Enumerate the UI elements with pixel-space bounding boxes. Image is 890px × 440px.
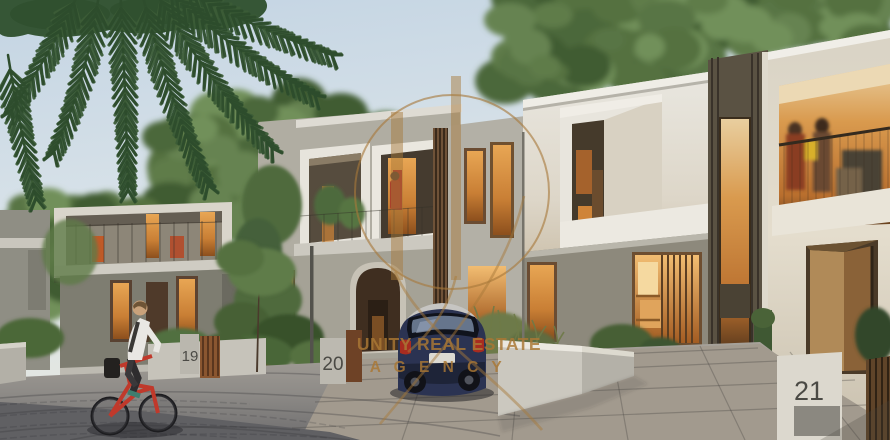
- svg-text:A G E N C Y: A G E N C Y: [370, 359, 507, 376]
- svg-text:UNITY REAL ESTATE: UNITY REAL ESTATE: [357, 334, 541, 354]
- svg-text:20: 20: [322, 354, 343, 375]
- svg-text:21: 21: [794, 376, 824, 406]
- svg-text:19: 19: [182, 348, 199, 365]
